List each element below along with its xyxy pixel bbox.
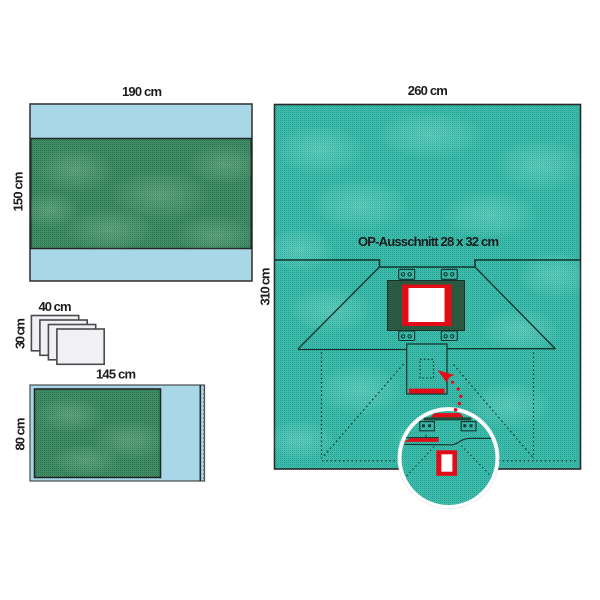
svg-text:40 cm: 40 cm	[39, 299, 72, 314]
svg-text:310 cm: 310 cm	[258, 268, 273, 306]
svg-text:OP-Ausschnitt 28 x 32 cm: OP-Ausschnitt 28 x 32 cm	[358, 234, 499, 249]
svg-text:260 cm: 260 cm	[408, 83, 448, 98]
svg-text:150 cm: 150 cm	[11, 172, 26, 212]
svg-text:145 cm: 145 cm	[96, 367, 136, 382]
svg-text:30 cm: 30 cm	[13, 318, 28, 349]
svg-text:190 cm: 190 cm	[122, 84, 162, 99]
svg-text:80 cm: 80 cm	[13, 418, 28, 451]
